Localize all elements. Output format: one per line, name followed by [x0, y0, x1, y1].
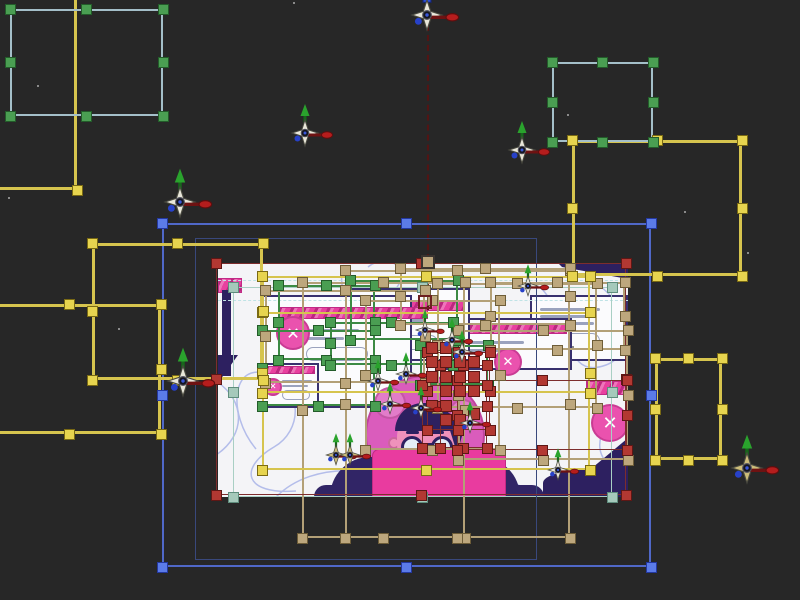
viewport[interactable]: ✕✕✕✕: [0, 0, 800, 600]
selection-handle[interactable]: [313, 325, 324, 336]
transform-gizmo-icon[interactable]: [403, 308, 448, 353]
selection-handle[interactable]: [650, 455, 661, 466]
selection-handle[interactable]: [648, 97, 659, 108]
selection-box-yellow-left-L[interactable]: [0, 304, 161, 434]
selection-handle[interactable]: [567, 271, 578, 282]
selection-handle[interactable]: [340, 378, 351, 389]
selection-handle[interactable]: [87, 306, 98, 317]
selection-handle[interactable]: [158, 111, 169, 122]
selection-handle[interactable]: [297, 405, 308, 416]
selection-handle[interactable]: [565, 399, 576, 410]
selection-handle[interactable]: [257, 465, 268, 476]
selection-handle[interactable]: [646, 562, 657, 573]
selection-handle[interactable]: [340, 285, 351, 296]
selection-handle[interactable]: [340, 399, 351, 410]
selection-handle[interactable]: [620, 277, 631, 288]
selection-handle[interactable]: [260, 285, 271, 296]
selection-handle[interactable]: [5, 4, 16, 15]
selection-handle[interactable]: [737, 203, 748, 214]
selection-handle[interactable]: [64, 429, 75, 440]
transform-gizmo-icon[interactable]: [146, 344, 220, 418]
selection-handle[interactable]: [623, 325, 634, 336]
selection-handle[interactable]: [482, 380, 493, 391]
selection-handle[interactable]: [156, 429, 167, 440]
selection-handle[interactable]: [345, 335, 356, 346]
selection-handle[interactable]: [512, 403, 523, 414]
selection-handle[interactable]: [432, 278, 443, 289]
selection-handle[interactable]: [547, 97, 558, 108]
selection-handle[interactable]: [607, 492, 618, 503]
selection-handle[interactable]: [452, 533, 463, 544]
selection-handle[interactable]: [585, 271, 596, 282]
selection-handle[interactable]: [646, 390, 657, 401]
selection-handle[interactable]: [622, 445, 633, 456]
selection-handle[interactable]: [211, 490, 222, 501]
transform-gizmo-icon[interactable]: [397, 384, 445, 432]
selection-handle[interactable]: [480, 263, 491, 274]
selection-handle[interactable]: [258, 238, 269, 249]
selection-handle[interactable]: [81, 4, 92, 15]
selection-handle[interactable]: [5, 111, 16, 122]
transform-gizmo-icon[interactable]: [710, 431, 784, 505]
selection-box-steel-topright-box[interactable]: [552, 62, 653, 142]
selection-handle[interactable]: [607, 387, 618, 398]
selection-handle[interactable]: [622, 410, 633, 421]
selection-handle[interactable]: [395, 291, 406, 302]
selection-handle[interactable]: [325, 360, 336, 371]
selection-handle[interactable]: [495, 370, 506, 381]
selection-handle[interactable]: [340, 533, 351, 544]
selection-handle[interactable]: [228, 492, 239, 503]
selection-handle[interactable]: [650, 353, 661, 364]
selection-handle[interactable]: [620, 345, 631, 356]
selection-handle[interactable]: [257, 388, 268, 399]
transform-gizmo-icon[interactable]: [490, 118, 554, 182]
selection-handle[interactable]: [340, 265, 351, 276]
transform-gizmo-icon[interactable]: [390, 0, 464, 52]
transform-gizmo-icon[interactable]: [446, 399, 494, 447]
selection-handle[interactable]: [378, 277, 389, 288]
speck: [747, 252, 749, 254]
selection-handle[interactable]: [648, 137, 659, 148]
selection-handle[interactable]: [158, 57, 169, 68]
selection-handle[interactable]: [592, 340, 603, 351]
selection-handle[interactable]: [157, 562, 168, 573]
selection-handle[interactable]: [607, 282, 618, 293]
transform-gizmo-icon[interactable]: [143, 165, 217, 239]
path-vertex-handle[interactable]: [468, 385, 480, 397]
selection-handle[interactable]: [421, 271, 432, 282]
selection-handle[interactable]: [565, 533, 576, 544]
transform-gizmo-icon[interactable]: [534, 446, 582, 494]
selection-handle[interactable]: [652, 271, 663, 282]
selection-handle[interactable]: [72, 185, 83, 196]
selection-handle[interactable]: [435, 443, 446, 454]
selection-handle[interactable]: [683, 455, 694, 466]
selection-handle[interactable]: [273, 317, 284, 328]
selection-handle[interactable]: [737, 271, 748, 282]
selection-handle[interactable]: [156, 299, 167, 310]
selection-handle[interactable]: [585, 388, 596, 399]
selection-handle[interactable]: [297, 277, 308, 288]
selection-handle[interactable]: [260, 331, 271, 342]
selection-handle[interactable]: [273, 280, 284, 291]
selection-handle[interactable]: [552, 345, 563, 356]
selection-handle[interactable]: [257, 401, 268, 412]
selection-handle[interactable]: [172, 238, 183, 249]
selection-handle[interactable]: [622, 375, 633, 386]
selection-handle[interactable]: [717, 353, 728, 364]
selection-handle[interactable]: [258, 375, 269, 386]
selection-handle[interactable]: [401, 562, 412, 573]
selection-handle[interactable]: [565, 320, 576, 331]
selection-handle[interactable]: [620, 311, 631, 322]
selection-handle[interactable]: [547, 57, 558, 68]
selection-handle[interactable]: [597, 57, 608, 68]
selection-handle[interactable]: [592, 403, 603, 414]
selection-handle[interactable]: [683, 353, 694, 364]
selection-handle[interactable]: [567, 135, 578, 146]
selection-handle[interactable]: [297, 533, 308, 544]
selection-handle[interactable]: [485, 277, 496, 288]
selection-handle[interactable]: [370, 325, 381, 336]
selection-handle[interactable]: [717, 404, 728, 415]
selection-handle[interactable]: [597, 137, 608, 148]
selection-handle[interactable]: [87, 375, 98, 386]
speck: [293, 2, 295, 4]
selection-handle[interactable]: [258, 306, 269, 317]
selection-handle[interactable]: [453, 455, 464, 466]
selection-handle[interactable]: [621, 258, 632, 269]
selection-handle[interactable]: [228, 282, 239, 293]
selection-handle[interactable]: [538, 325, 549, 336]
path-vertex-handle[interactable]: [454, 385, 466, 397]
selection-handle[interactable]: [452, 265, 463, 276]
speck: [8, 197, 10, 199]
selection-handle[interactable]: [87, 238, 98, 249]
selection-handle[interactable]: [565, 291, 576, 302]
selection-handle[interactable]: [395, 263, 406, 274]
selection-handle[interactable]: [313, 401, 324, 412]
transform-gizmo-icon[interactable]: [504, 262, 552, 310]
selection-handle[interactable]: [378, 533, 389, 544]
selection-box-yellow-topright-box[interactable]: [572, 140, 742, 276]
selection-box-steel-topleft-box[interactable]: [10, 9, 163, 116]
selection-handle[interactable]: [325, 317, 336, 328]
selection-handle[interactable]: [650, 404, 661, 415]
selection-handle[interactable]: [621, 490, 632, 501]
selection-handle[interactable]: [211, 258, 222, 269]
transform-gizmo-icon[interactable]: [273, 101, 337, 165]
selection-handle[interactable]: [648, 57, 659, 68]
selection-handle[interactable]: [273, 355, 284, 366]
selection-handle[interactable]: [585, 465, 596, 476]
selection-handle[interactable]: [421, 465, 432, 476]
selection-handle[interactable]: [158, 4, 169, 15]
selection-handle[interactable]: [537, 375, 548, 386]
selection-handle[interactable]: [81, 111, 92, 122]
selection-handle[interactable]: [401, 218, 412, 229]
selection-handle[interactable]: [585, 307, 596, 318]
selection-handle[interactable]: [417, 443, 428, 454]
selection-handle[interactable]: [257, 271, 268, 282]
selection-handle[interactable]: [325, 338, 336, 349]
selection-handle[interactable]: [485, 347, 496, 358]
selection-handle[interactable]: [552, 277, 563, 288]
transform-gizmo-icon[interactable]: [326, 431, 374, 479]
selection-handle[interactable]: [737, 135, 748, 146]
selection-handle[interactable]: [585, 368, 596, 379]
selection-handle[interactable]: [567, 203, 578, 214]
selection-handle[interactable]: [228, 387, 239, 398]
selection-handle[interactable]: [460, 277, 471, 288]
selection-handle[interactable]: [360, 295, 371, 306]
selection-handle[interactable]: [321, 280, 332, 291]
selection-handle[interactable]: [5, 57, 16, 68]
selection-handle[interactable]: [623, 455, 634, 466]
selection-handle[interactable]: [646, 218, 657, 229]
selection-handle[interactable]: [623, 390, 634, 401]
anchor-point-box[interactable]: [421, 255, 435, 269]
selection-handle[interactable]: [64, 299, 75, 310]
selection-handle[interactable]: [495, 445, 506, 456]
selection-handle[interactable]: [416, 490, 427, 501]
